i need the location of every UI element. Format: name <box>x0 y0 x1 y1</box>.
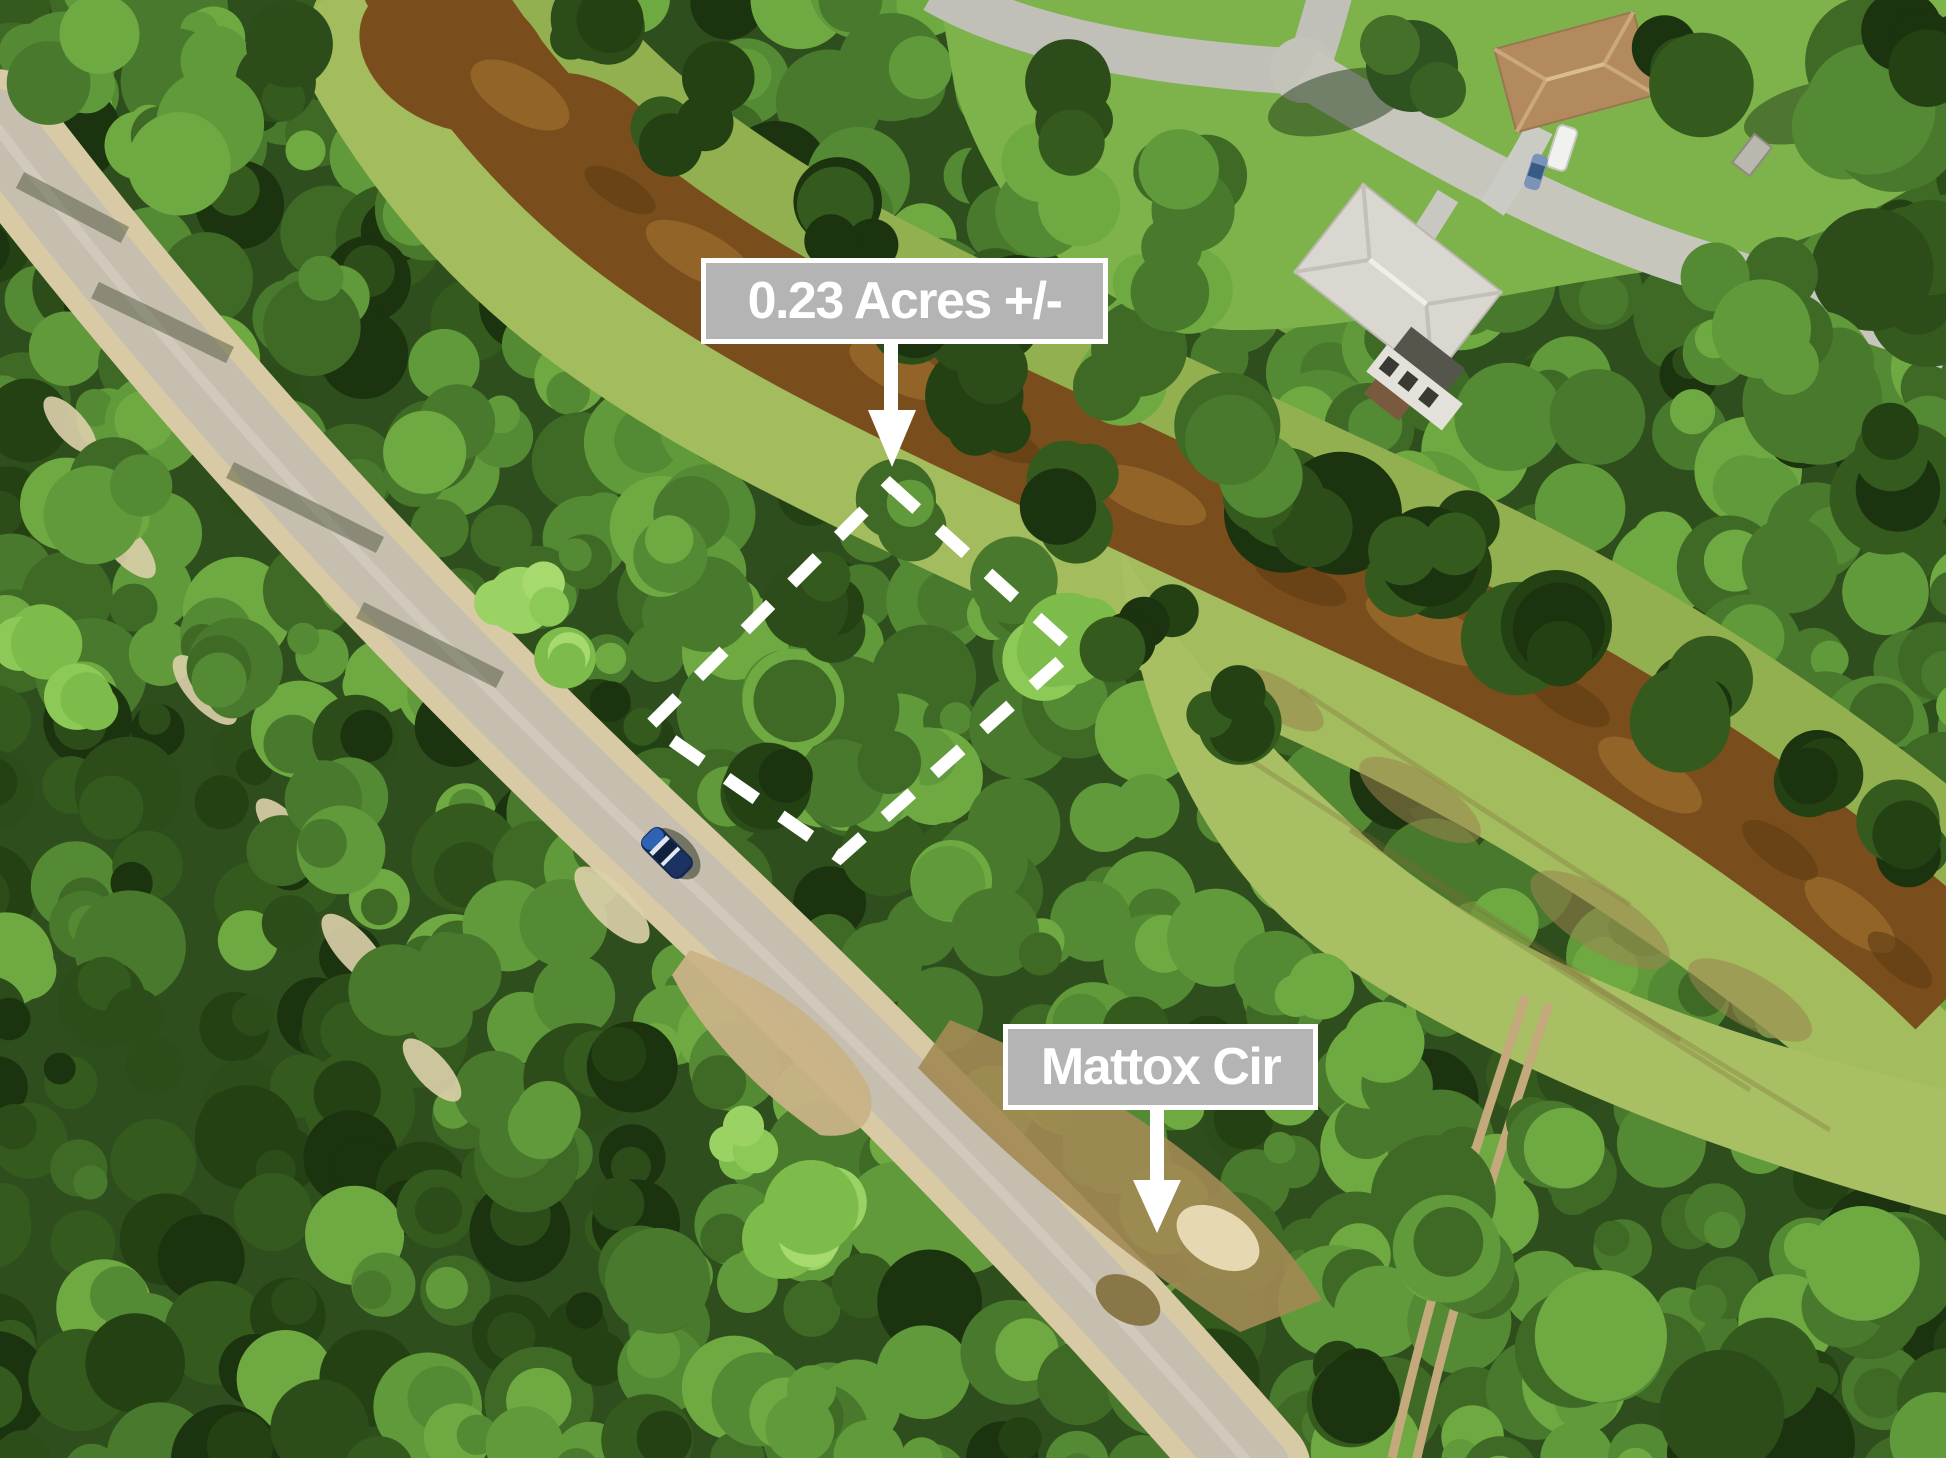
acreage-label: 0.23 Acres +/- <box>701 258 1108 344</box>
aerial-photo: 0.23 Acres +/- Mattox Cir <box>0 0 1946 1458</box>
aerial-photo-svg <box>0 0 1946 1458</box>
street-label: Mattox Cir <box>1003 1024 1318 1110</box>
